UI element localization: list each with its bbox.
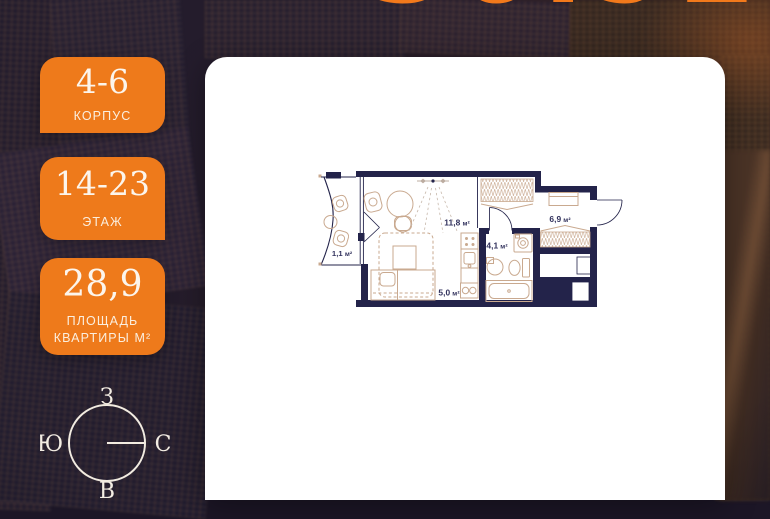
compass-north: С (155, 432, 172, 457)
room-label-living: 11,8м² (444, 218, 470, 228)
bed (371, 270, 435, 300)
compass-west: З (100, 385, 114, 410)
balcony-door (364, 212, 380, 242)
room-label-kitchen: 5,0м² (438, 288, 460, 298)
floor-range: 14-23 (55, 167, 150, 200)
bathroom-door (490, 208, 513, 231)
shaft (577, 257, 592, 274)
toilet (509, 259, 530, 278)
building-range: 4-6 (76, 65, 129, 98)
rug (379, 233, 433, 297)
building-card: 4-6 КОРПУС (40, 57, 165, 133)
hall-cabinet (549, 193, 578, 206)
building-card-label: КОРПУС (68, 108, 138, 124)
kitchen-unit (461, 233, 479, 298)
road-glow (720, 150, 770, 500)
compass: З Ю С В (40, 376, 180, 500)
washing-machine (514, 234, 532, 252)
floor-plan: 11,8м² 6,9м² 4,1м² 5,0м² 1,1м² (300, 152, 650, 314)
room-label-hallway: 6,9м² (549, 214, 571, 224)
area-card: 28,9 ПЛОЩАДЬ КВАРТИРЫ М² (40, 258, 165, 355)
compass-south: Ю (40, 432, 63, 457)
area-value: 28,9 (62, 267, 142, 303)
entry-door (597, 200, 622, 225)
apartment-plan-panel: 11,8м² 6,9м² 4,1м² 5,0м² 1,1м² (205, 57, 725, 500)
bathtub (486, 281, 532, 302)
room-label-balcony: 1,1м² (332, 249, 353, 258)
big-price-number: 36.92 (370, 0, 764, 20)
shaft (572, 282, 589, 301)
compass-east: В (99, 479, 115, 500)
sink (487, 258, 504, 276)
floor-card: 14-23 ЭТАЖ (40, 157, 165, 240)
room-label-bathroom: 4,1м² (486, 241, 508, 251)
floor-card-label: ЭТАЖ (76, 214, 128, 230)
dining-table (363, 191, 413, 232)
area-card-label: ПЛОЩАДЬ КВАРТИРЫ М² (40, 313, 165, 346)
